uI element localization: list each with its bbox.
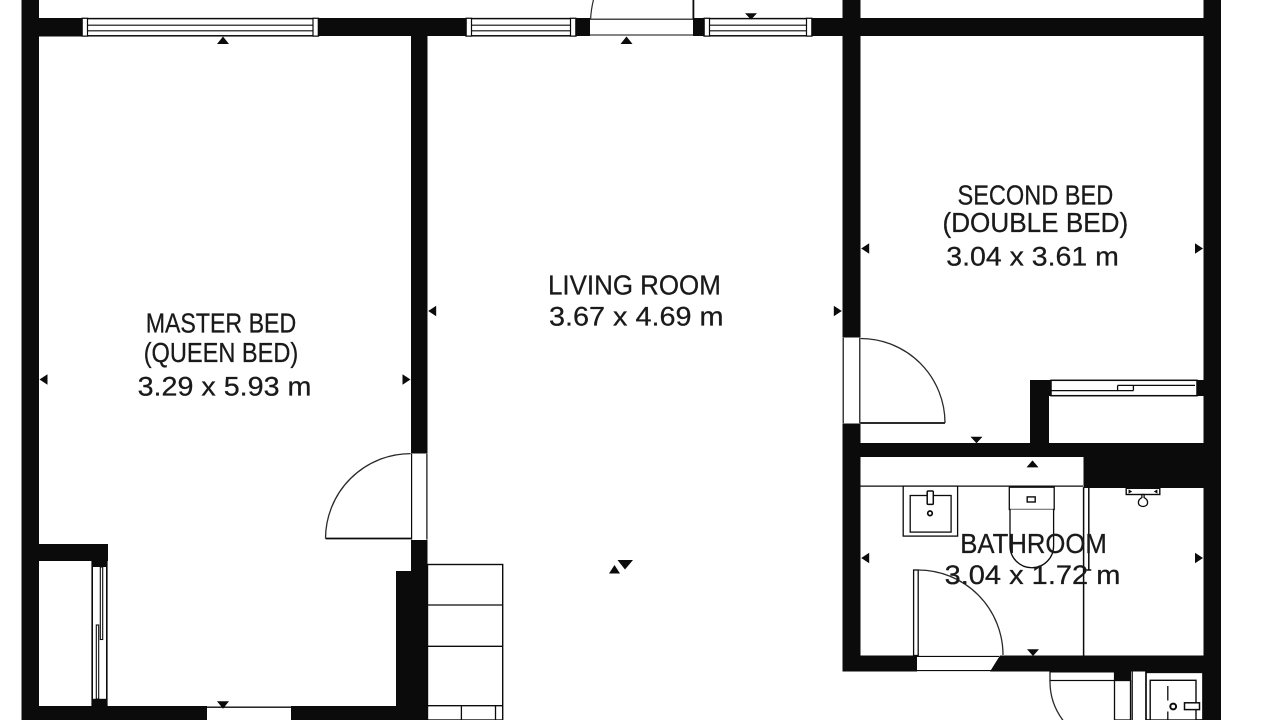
svg-text:3.67 x 4.69 m: 3.67 x 4.69 m	[549, 302, 724, 332]
svg-text:LIVING ROOM: LIVING ROOM	[548, 270, 721, 301]
svg-text:BATHROOM: BATHROOM	[960, 528, 1107, 559]
svg-text:3.29 x 5.93 m: 3.29 x 5.93 m	[138, 372, 312, 402]
svg-text:SECOND BED: SECOND BED	[958, 180, 1114, 211]
svg-text:(DOUBLE BED): (DOUBLE BED)	[943, 207, 1129, 238]
svg-text:MASTER BED: MASTER BED	[146, 308, 297, 339]
svg-text:3.04 x 3.61 m: 3.04 x 3.61 m	[946, 241, 1119, 271]
svg-text:(QUEEN BED): (QUEEN BED)	[144, 337, 299, 368]
svg-text:3.04 x 1.72 m: 3.04 x 1.72 m	[945, 560, 1121, 590]
